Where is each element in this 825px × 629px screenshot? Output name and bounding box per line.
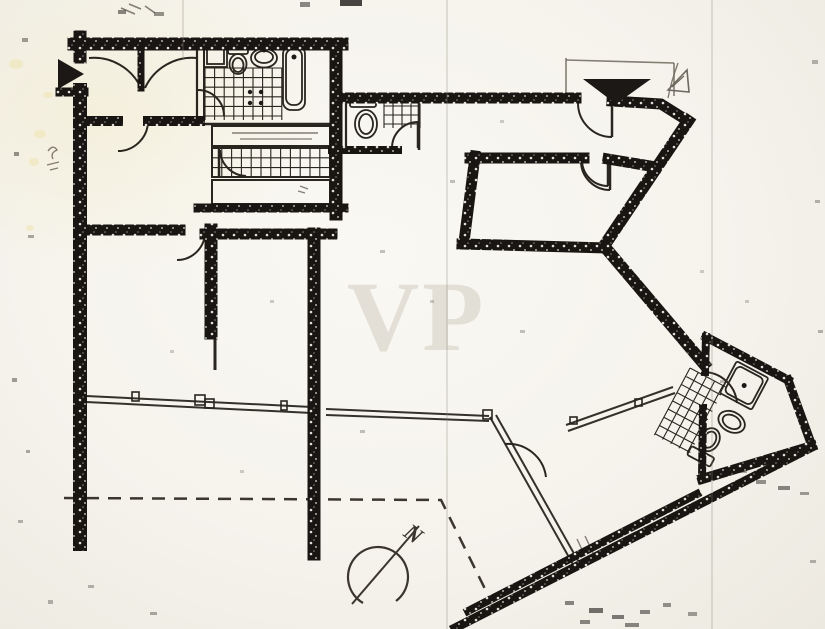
scan-speckle — [565, 601, 574, 605]
scan-speckle — [150, 612, 157, 615]
pencil-mark — [121, 4, 155, 14]
scan-speckle — [170, 350, 174, 353]
scan-speckle — [778, 486, 790, 490]
exterior-wall — [788, 380, 812, 446]
paper-stain — [26, 225, 34, 231]
scan-speckle — [815, 200, 820, 203]
pencil-mark — [48, 147, 57, 159]
watermark-text: VP — [347, 261, 486, 372]
scan-speckle — [520, 330, 525, 333]
paper-stain — [34, 130, 46, 138]
scan-speckle — [48, 600, 53, 604]
bathroom-fixture — [255, 51, 273, 63]
dashed-boundary-line — [64, 498, 489, 597]
fixture-dot — [248, 101, 252, 105]
fixture-dot — [259, 90, 263, 94]
scan-speckle — [625, 623, 639, 627]
window-line — [86, 402, 312, 413]
scan-speckle — [118, 10, 126, 14]
fixture-dot — [248, 90, 252, 94]
pencil-mark — [566, 60, 674, 63]
fixture-dot — [292, 55, 297, 60]
exterior-wall — [455, 447, 812, 628]
exterior-wall — [706, 337, 788, 380]
window-mullion-tick — [195, 395, 205, 405]
window-line — [490, 417, 575, 568]
scan-speckle — [612, 615, 624, 619]
exterior-wall — [612, 101, 688, 121]
scan-speckle — [740, 470, 747, 473]
door-swing-arc — [578, 103, 612, 137]
window-line — [496, 415, 581, 566]
paper-stain — [9, 59, 23, 69]
scan-speckle — [589, 608, 603, 613]
scan-speckle — [720, 380, 725, 383]
window-line — [568, 393, 675, 431]
scan-speckle — [26, 450, 30, 453]
scan-speckle — [580, 620, 590, 624]
scan-speckle — [810, 560, 816, 563]
exterior-wall — [705, 337, 706, 372]
paper-stain-layer — [9, 59, 53, 231]
scan-speckle — [12, 378, 17, 382]
scan-speckle — [450, 180, 455, 183]
pencil-mark — [298, 186, 308, 193]
scan-speckle — [818, 330, 823, 333]
floorplan-drawing: VP N — [0, 0, 825, 629]
window-line — [566, 387, 673, 425]
scanned-floorplan-page: VP N — [0, 0, 825, 629]
scan-speckle — [663, 603, 671, 607]
scan-speckle — [28, 235, 34, 238]
door-swing-arc — [145, 58, 197, 88]
exterior-wall — [604, 246, 704, 364]
door-swing-arc — [392, 122, 418, 148]
bathroom-fixture — [207, 49, 224, 64]
exterior-wall — [702, 408, 703, 479]
tile-grid — [212, 148, 330, 177]
scan-speckle — [812, 60, 818, 64]
scan-speckle — [360, 430, 365, 433]
tile-grid — [205, 68, 282, 120]
scan-speckle — [154, 12, 164, 16]
scan-speckle — [800, 492, 809, 495]
exterior-wall — [604, 121, 688, 246]
interior-wall-line — [212, 126, 330, 146]
scan-speckle — [14, 152, 19, 156]
scan-speckle — [640, 610, 650, 614]
paper-stain — [43, 92, 53, 98]
scan-speckle — [340, 0, 362, 6]
scan-speckle — [756, 480, 766, 484]
scan-speckle — [430, 300, 434, 303]
pencil-mark — [47, 162, 59, 170]
paper-stain — [29, 158, 39, 166]
fixture-dot — [741, 382, 748, 389]
scan-speckle — [18, 520, 23, 523]
scan-speckle — [500, 120, 504, 123]
scan-speckle — [745, 300, 749, 303]
fixture-dot — [259, 101, 263, 105]
exterior-wall — [468, 494, 697, 611]
interior-wall-line — [212, 180, 330, 204]
bathroom-fixture — [233, 58, 244, 72]
window-mullion-tick — [132, 392, 139, 401]
scan-speckle — [700, 270, 704, 273]
scan-speckle — [22, 38, 28, 42]
scan-speckle — [688, 612, 697, 616]
scan-speckle — [380, 250, 385, 253]
window-mullion-tick — [205, 399, 214, 408]
exterior-wall — [464, 156, 475, 242]
door-swing-arc — [198, 90, 224, 116]
scan-speckle — [240, 470, 244, 473]
door-swing-arc — [89, 58, 141, 88]
door-swing-arc — [505, 444, 546, 477]
scan-speckle — [88, 585, 94, 588]
exterior-wall — [462, 244, 606, 248]
bathroom-fixture — [359, 114, 373, 134]
scan-speckle — [300, 2, 310, 7]
exterior-wall — [608, 159, 656, 167]
scan-speckle — [270, 300, 274, 303]
door-swing-arc — [220, 150, 246, 176]
